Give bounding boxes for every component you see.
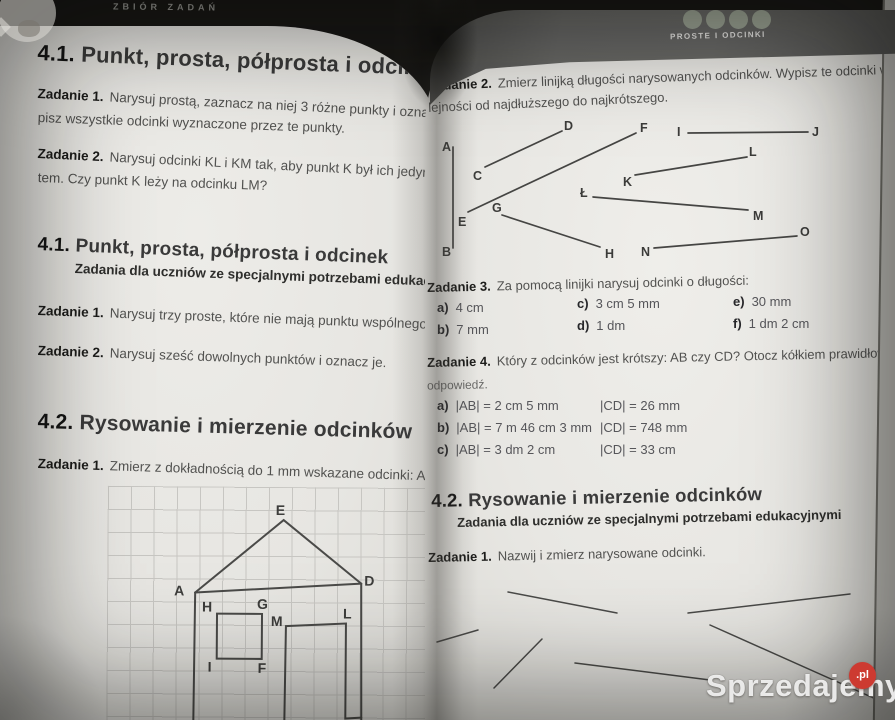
seg-label-LSTROKE: Ł: [580, 186, 588, 200]
r-task4-line1: Zadanie 4.Który z odcinków jest krótszy:…: [427, 345, 894, 370]
dot-icon: [683, 10, 702, 29]
segments-diagram: A B C D E F G H I J K L Ł M N O: [440, 118, 835, 270]
left-page: 4.1. Punkt, prosta, półprosta i odcinek …: [0, 26, 437, 720]
task1-42: Zadanie 1.Zmierz z dokładnością do 1 mm …: [38, 456, 437, 486]
seg-label-I: I: [677, 125, 680, 139]
pl-badge-icon: .pl: [849, 662, 876, 689]
seg-label-E: E: [458, 215, 466, 229]
seg-label-B: B: [442, 245, 451, 259]
r-task2-line2: lejności od najdłuższego do najkrótszego…: [428, 90, 668, 115]
task2-label: Zadanie 2.: [37, 146, 104, 164]
band-dots-icon: [683, 10, 771, 29]
r-section-4-2-heading: 4.2. Rysowanie i mierzenie odcinków: [431, 483, 762, 512]
seg-label-A: A: [442, 140, 451, 154]
seg-label-M: M: [753, 209, 763, 223]
task1-sen: Zadanie 1.Narysuj trzy proste, które nie…: [37, 303, 430, 332]
task1-label: Zadanie 1.: [37, 86, 104, 104]
point-label-I: I: [208, 659, 212, 675]
task3-item-e: e)30 mm: [733, 294, 791, 309]
task2-sen: Zadanie 2.Narysuj sześć dowolnych punktó…: [37, 343, 386, 370]
section-4-1-heading: 4.1. Punkt, prosta, półprosta i odcinek: [37, 40, 437, 82]
right-page: Zadanie 2.Zmierz linijką długości naryso…: [425, 12, 895, 720]
house-figure-grid: E A D H G M L I F: [106, 486, 434, 720]
point-label-F: F: [258, 660, 267, 676]
r-task3-intro: Zadanie 3.Za pomocą linijki narysuj odci…: [427, 273, 749, 295]
logo-blob: [18, 20, 40, 37]
right-page-running-head: PROSTE I ODCINKI: [670, 30, 766, 42]
dot-icon: [706, 10, 725, 29]
seg-label-G: G: [492, 201, 502, 215]
task1-line2: pisz wszystkie odcinki wyznaczone przez …: [37, 110, 345, 136]
seg-label-K: K: [623, 175, 632, 189]
watermark-sprzedajemy: Sprzedajemy .pl: [706, 668, 895, 704]
task4-row-c: c)|AB| = 3 dm 2 cm |CD| = 33 cm: [437, 442, 555, 457]
point-label-M: M: [271, 613, 283, 629]
section-title: Punkt, prosta, półprosta i odcinek: [81, 42, 437, 81]
r-task4-line2: odpowiedź.: [427, 377, 488, 392]
task2-line2: tem. Czy punkt K leży na odcinku LM?: [37, 170, 267, 193]
seg-label-J: J: [812, 125, 819, 139]
seg-label-L: L: [749, 145, 757, 159]
dot-icon: [729, 10, 748, 29]
seg-label-O: O: [800, 225, 810, 239]
seg-label-H: H: [605, 247, 614, 261]
task3-item-b: b)7 mm: [437, 322, 489, 337]
task3-item-c: c)3 cm 5 mm: [577, 296, 660, 311]
seg-label-F: F: [640, 121, 648, 135]
section-number: 4.1.: [37, 40, 75, 66]
point-label-H: H: [202, 599, 212, 615]
seg-label-N: N: [641, 245, 650, 259]
task4-row-a: a)|AB| = 2 cm 5 mm |CD| = 26 mm: [437, 398, 559, 413]
seg-label-C: C: [473, 169, 482, 183]
task3-item-a: a)4 cm: [437, 300, 484, 315]
task4-row-b: b)|AB| = 7 m 46 cm 3 mm |CD| = 748 mm: [437, 420, 592, 435]
point-label-L: L: [343, 606, 352, 622]
house-figure: [106, 486, 434, 720]
dot-icon: [752, 10, 771, 29]
point-label-D: D: [364, 573, 374, 589]
left-page-running-head: ZBIÓR ZADAŃ: [113, 1, 219, 12]
r-task1: Zadanie 1.Nazwij i zmierz narysowane odc…: [428, 544, 706, 565]
task3-item-d: d)1 dm: [577, 318, 625, 333]
point-label-E: E: [276, 502, 285, 518]
r-section-4-2-subtitle: Zadania dla uczniów ze specjalnymi potrz…: [457, 507, 842, 530]
task3-item-f: f)1 dm 2 cm: [733, 316, 809, 331]
book-photo: ZBIÓR ZADAŃ 4.1. Punkt, prosta, półprost…: [0, 0, 895, 720]
point-label-G: G: [257, 596, 268, 612]
point-label-A: A: [174, 582, 184, 598]
section-4-2-heading: 4.2. Rysowanie i mierzenie odcinków: [37, 410, 412, 444]
seg-label-D: D: [564, 119, 573, 133]
